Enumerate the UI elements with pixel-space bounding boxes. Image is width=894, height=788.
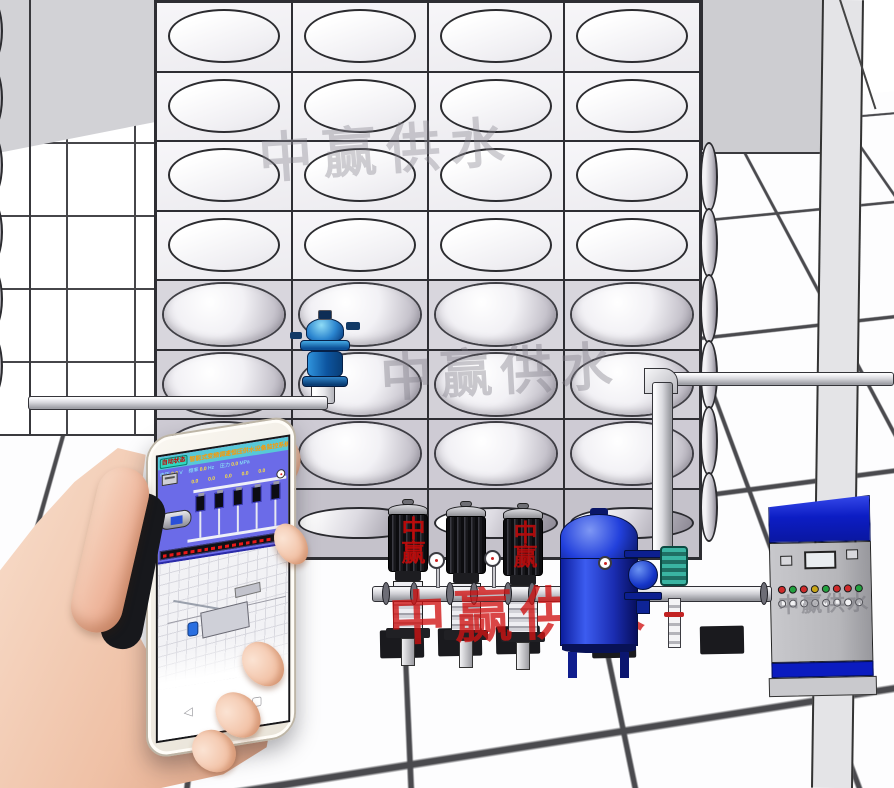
tank-panel: [156, 211, 292, 281]
tank-panel: [428, 211, 564, 281]
float-control-valve: [294, 310, 356, 396]
valve-body: [307, 351, 343, 377]
tank-panel: [156, 280, 292, 350]
cabinet-front-panel: [769, 541, 873, 663]
tank-panel: [564, 141, 700, 211]
frame-foot: [700, 626, 744, 655]
blue-flanged-valve: [624, 550, 662, 614]
tank-panel: [156, 141, 292, 211]
tank-panel: [292, 72, 428, 142]
tank-panel: [564, 2, 700, 72]
cabinet-button-left: [780, 556, 792, 566]
valve-stem: [318, 310, 332, 320]
tank-panel: [156, 72, 292, 142]
tank-panel: [564, 211, 700, 281]
tank-panel: [428, 419, 564, 489]
pipe-flange: [528, 582, 536, 605]
nav-back-button[interactable]: ◁: [184, 704, 193, 720]
back-gray-wall: [688, 0, 838, 154]
product-render-scene: 中赢供水 中赢供水 中赢供水 中赢 中赢: [0, 0, 894, 788]
tank-panel: [292, 2, 428, 72]
control-cabinet: [768, 495, 874, 697]
pipe-flange: [410, 582, 418, 605]
pipe-flange: [760, 582, 768, 605]
outlet-horizontal-pipe: [648, 372, 894, 386]
cabinet-blue-top: [768, 495, 871, 543]
hmi-monitor-screen: 自动状态 智能式变频调速恒压供水设备监控系统 (Np v1.1 A) 电压 0.…: [158, 437, 288, 565]
tank-panel: [428, 72, 564, 142]
outlet-vertical-pipe: [652, 382, 673, 558]
cabinet-plinth: [769, 676, 877, 697]
hmi-pump-icon: [270, 478, 280, 526]
hmi-status-chip[interactable]: 自动状态: [160, 454, 188, 469]
valve-flange-top: [300, 340, 350, 351]
tank-left-scallop-edge: [0, 0, 3, 436]
tank-right-scallop-edge: [700, 146, 718, 562]
tank-panel: [292, 419, 428, 489]
pipe-flange: [382, 582, 390, 605]
drain-fitting: [668, 598, 681, 648]
flexible-joint: [660, 546, 688, 586]
vertical-pump-1: [386, 502, 430, 668]
tank-panel: [428, 350, 564, 420]
inlet-horizontal-pipe: [28, 396, 328, 410]
valve-dome: [306, 318, 344, 342]
tank-right-edge-line: [700, 0, 703, 150]
hmi-pump-icon: [214, 487, 224, 535]
tank-panel: [564, 72, 700, 142]
valve-flange-bottom: [302, 376, 348, 387]
gauge-stem: [492, 564, 496, 588]
cabinet-push-buttons: [778, 598, 863, 608]
wall-corner-line: [29, 0, 31, 436]
tank-panel: [292, 141, 428, 211]
valve-side-fitting: [290, 332, 302, 339]
tank-pressure-gauge: [598, 556, 612, 570]
tank-panel: [292, 211, 428, 281]
pipe-flange: [446, 582, 454, 605]
tank-panel: [156, 2, 292, 72]
drain-valve-handle: [664, 612, 684, 617]
tank-panel: [564, 419, 700, 489]
pressure-gauge-2: [484, 550, 501, 567]
hmi-cabinet-icon: [162, 472, 178, 486]
pipe-flange: [470, 582, 478, 605]
cabinet-display: [804, 551, 836, 570]
pressure-gauge-1: [428, 552, 445, 569]
hmi-pump-icon: [195, 490, 205, 538]
gauge-stem: [436, 566, 440, 588]
cabinet-button-right: [846, 549, 858, 559]
valve-pilot-fitting: [346, 322, 360, 330]
pipe-flange: [504, 582, 512, 605]
tank-panel: [428, 141, 564, 211]
tank-panel: [428, 2, 564, 72]
tank-panel: [428, 280, 564, 350]
hmi-pump-icon: [233, 484, 243, 532]
tank-panel: [564, 280, 700, 350]
cabinet-indicator-lights: [778, 584, 863, 594]
hmi-pump-icon: [252, 481, 262, 529]
